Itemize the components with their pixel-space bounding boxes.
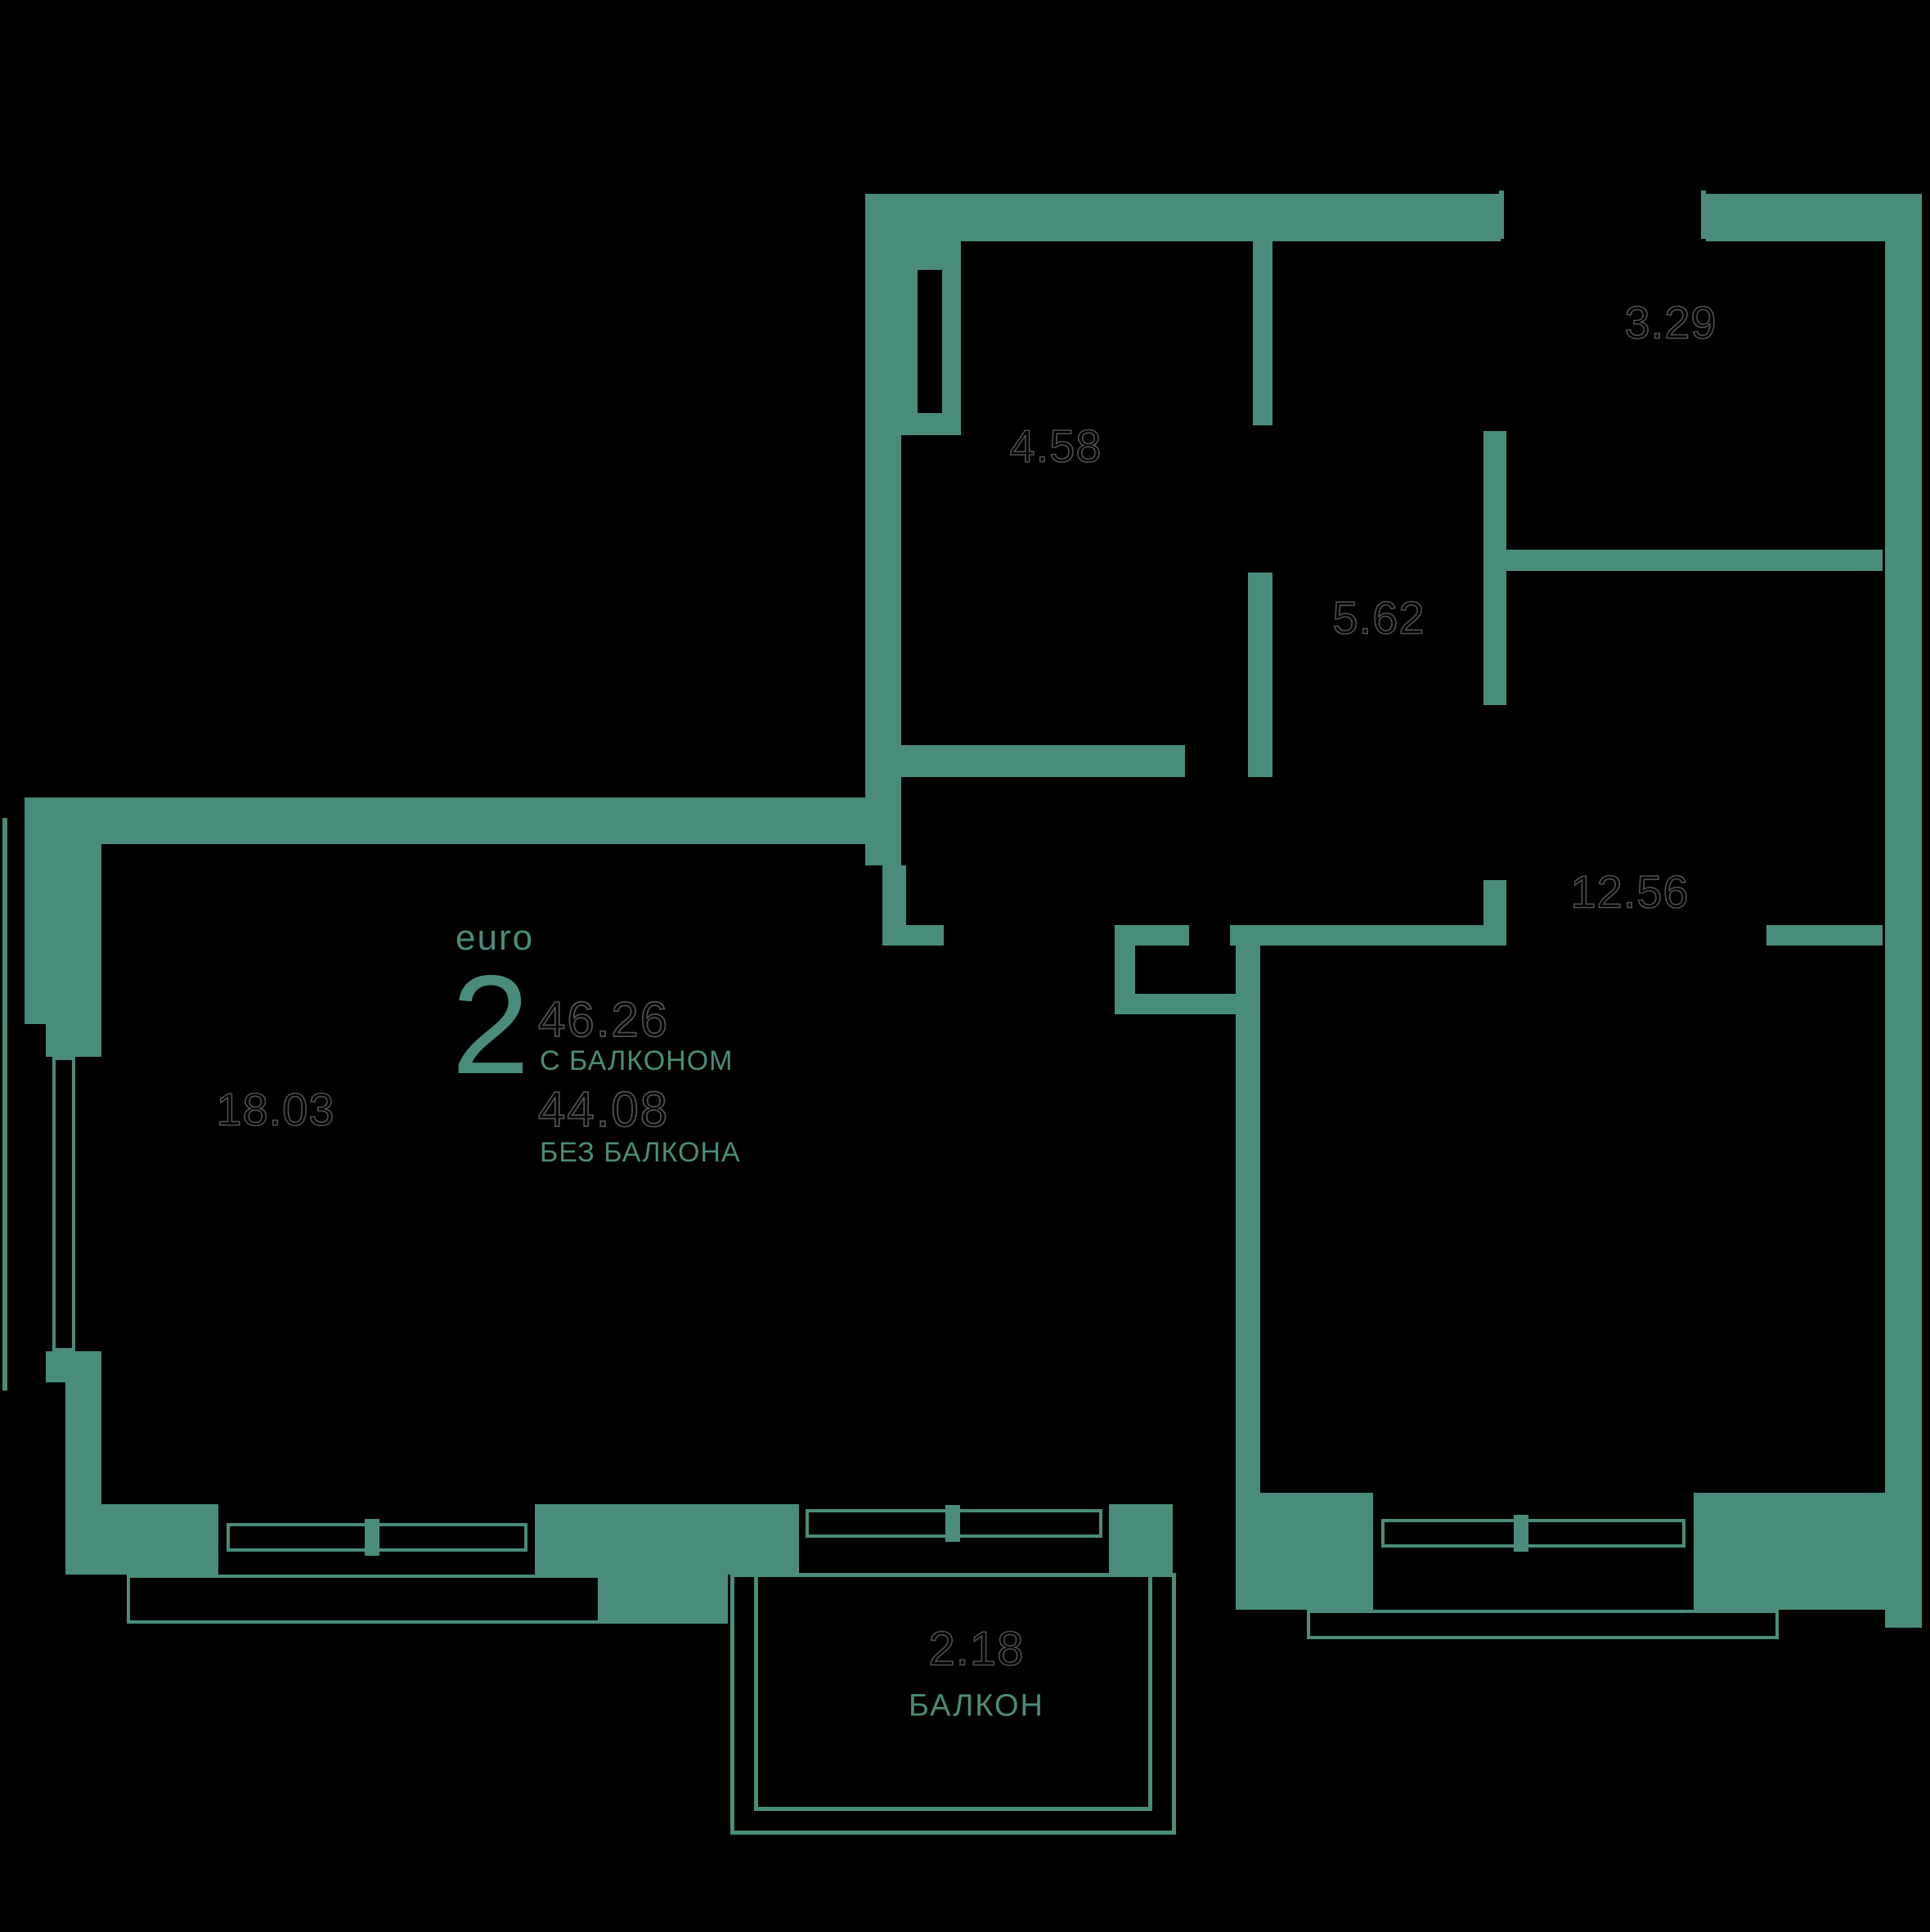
wall-living-left-upper: [25, 798, 101, 1024]
window1-mullion: [365, 1519, 379, 1556]
window1-sill-ledge: [127, 1575, 601, 1624]
band-living-2: [535, 1504, 799, 1575]
legend-with-balcony-label: С БАЛКОНОМ: [540, 1045, 734, 1077]
room-label-wardrobe: 3.29: [1625, 296, 1717, 349]
window3-mullion: [1514, 1515, 1528, 1552]
floor-plan-canvas: 4.58 3.29 5.62 12.56 18.03 2.18 БАЛКОН e…: [0, 0, 1930, 1932]
room-label-balcony-name: БАЛКОН: [909, 1689, 1044, 1724]
window1-pane-left: [227, 1523, 372, 1552]
wall-storage-right-lower: [1248, 573, 1272, 777]
window2-pane-right: [953, 1509, 1102, 1538]
room-label-balcony-area: 2.18: [929, 1622, 1025, 1677]
band-living-1: [101, 1504, 218, 1575]
wall-opening-jamb-foot: [882, 925, 944, 946]
band-bedroom-1: [1236, 1493, 1373, 1610]
band-living-3: [1109, 1504, 1173, 1575]
wall-living-left-lower: [65, 1382, 101, 1575]
left-window-cap-top: [46, 1024, 101, 1057]
window1-pane-right: [372, 1523, 527, 1552]
wall-niche-top: [1115, 925, 1189, 946]
room-label-storage: 4.58: [1010, 420, 1102, 473]
entrance-door-jamb-left: [1499, 191, 1504, 239]
wall-storage-right-upper: [1253, 241, 1272, 425]
wall-storage-bottom: [901, 745, 1185, 777]
legend-area-without-balcony: 44.08: [538, 1081, 669, 1138]
wall-wardrobe-west: [1483, 431, 1506, 705]
wall-living-top: [25, 798, 865, 844]
left-window-glazing: [52, 1057, 75, 1351]
window3-sill-ledge: [1307, 1610, 1779, 1639]
shaft-ring-cavity: [918, 270, 942, 413]
wall-topsection-left-outer: [865, 241, 901, 865]
wall-mid-horizontal: [1230, 925, 1506, 946]
wall-stub-right: [1766, 925, 1883, 946]
legend-without-balcony-label: БЕЗ БАЛКОНА: [540, 1137, 741, 1169]
left-window-cap-bottom: [46, 1351, 101, 1382]
room-label-hallway: 5.62: [1333, 591, 1425, 645]
window3-pane-left: [1381, 1519, 1521, 1548]
window2-mullion: [945, 1505, 960, 1542]
room-label-bedroom: 12.56: [1570, 865, 1689, 919]
wall-bedroom-door-jamb: [1483, 880, 1506, 925]
window3-pane-right: [1521, 1519, 1685, 1548]
legend-area-with-balcony: 46.26: [538, 991, 669, 1048]
wall-outer-right: [1885, 194, 1922, 1628]
legend-type-number: 2: [451, 970, 530, 1080]
wall-top-left-segment: [865, 194, 1501, 241]
left-facade-line: [2, 818, 7, 1391]
wall-opening-jamb-vertical: [882, 865, 906, 925]
room-label-living-room: 18.03: [216, 1083, 334, 1136]
band-bedroom-2: [1694, 1493, 1885, 1610]
wall-wardrobe-bottom: [1506, 550, 1883, 571]
window2-pane-left: [806, 1509, 953, 1538]
